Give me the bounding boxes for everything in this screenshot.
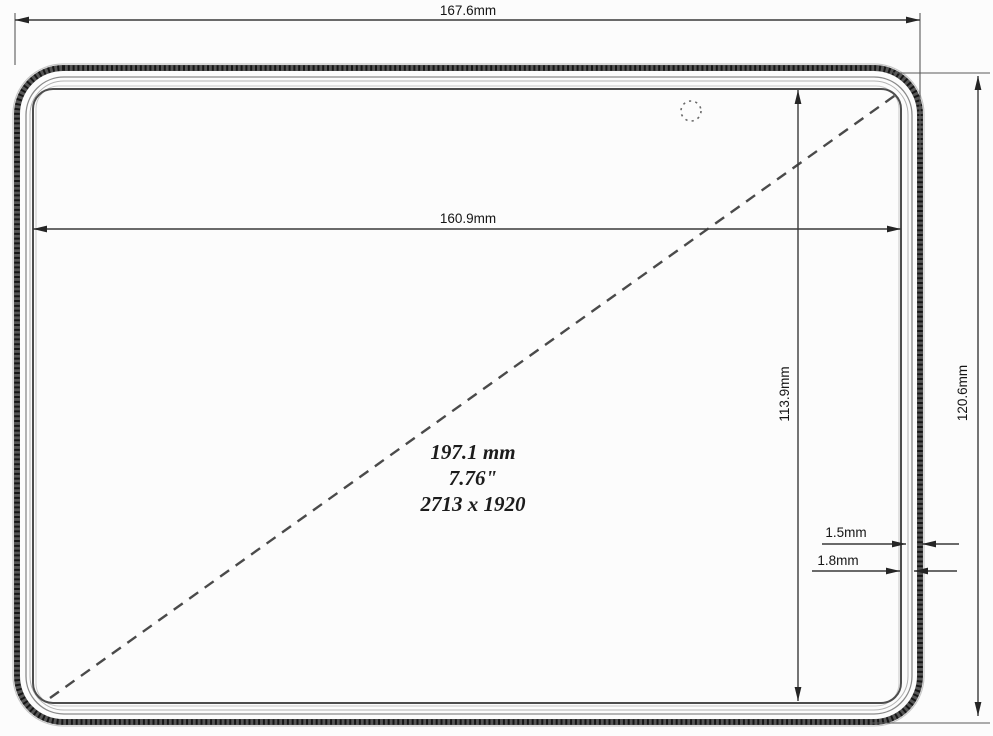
drawing-svg: 167.6mm 160.9mm 113.9mm 120.6mm	[0, 0, 993, 736]
display-resolution-label: 2713 x 1920	[420, 492, 527, 516]
arrow-left-icon	[33, 226, 47, 233]
display-width-label: 160.9mm	[440, 211, 496, 226]
arrow-down-icon	[795, 687, 802, 701]
diagonal-dashed-line	[50, 94, 897, 698]
arrow-up-icon	[795, 90, 802, 104]
dim-display-height: 113.9mm	[777, 90, 801, 701]
bezel-inner-label: 1.5mm	[825, 525, 866, 540]
screen-outline	[33, 86, 901, 706]
display-diagonal-mm-label: 197.1 mm	[430, 440, 515, 464]
bezel-outer-label: 1.8mm	[817, 553, 858, 568]
dim-bezel-outer: 1.8mm	[812, 553, 957, 574]
arrow-right-icon	[886, 568, 900, 575]
dim-display-width: 160.9mm	[33, 211, 901, 232]
arrow-up-icon	[975, 76, 982, 90]
dim-bezel-inner: 1.5mm	[822, 525, 959, 547]
display-height-label: 113.9mm	[777, 366, 792, 421]
arrow-right-icon	[906, 17, 920, 24]
dimension-drawing-canvas: 167.6mm 160.9mm 113.9mm 120.6mm	[0, 0, 993, 736]
arrow-down-icon	[975, 702, 982, 716]
display-info-block: 197.1 mm 7.76" 2713 x 1920	[420, 440, 527, 516]
front-camera-icon	[681, 101, 701, 121]
display-diagonal-inch-label: 7.76"	[449, 466, 497, 490]
screen-outer-faint-line	[36, 86, 899, 706]
overall-height-label: 120.6mm	[955, 365, 970, 421]
dim-overall-height: 120.6mm	[870, 73, 990, 723]
overall-width-label: 167.6mm	[440, 3, 496, 18]
screen-edge-line	[33, 89, 901, 703]
arrow-left-icon	[15, 17, 29, 24]
